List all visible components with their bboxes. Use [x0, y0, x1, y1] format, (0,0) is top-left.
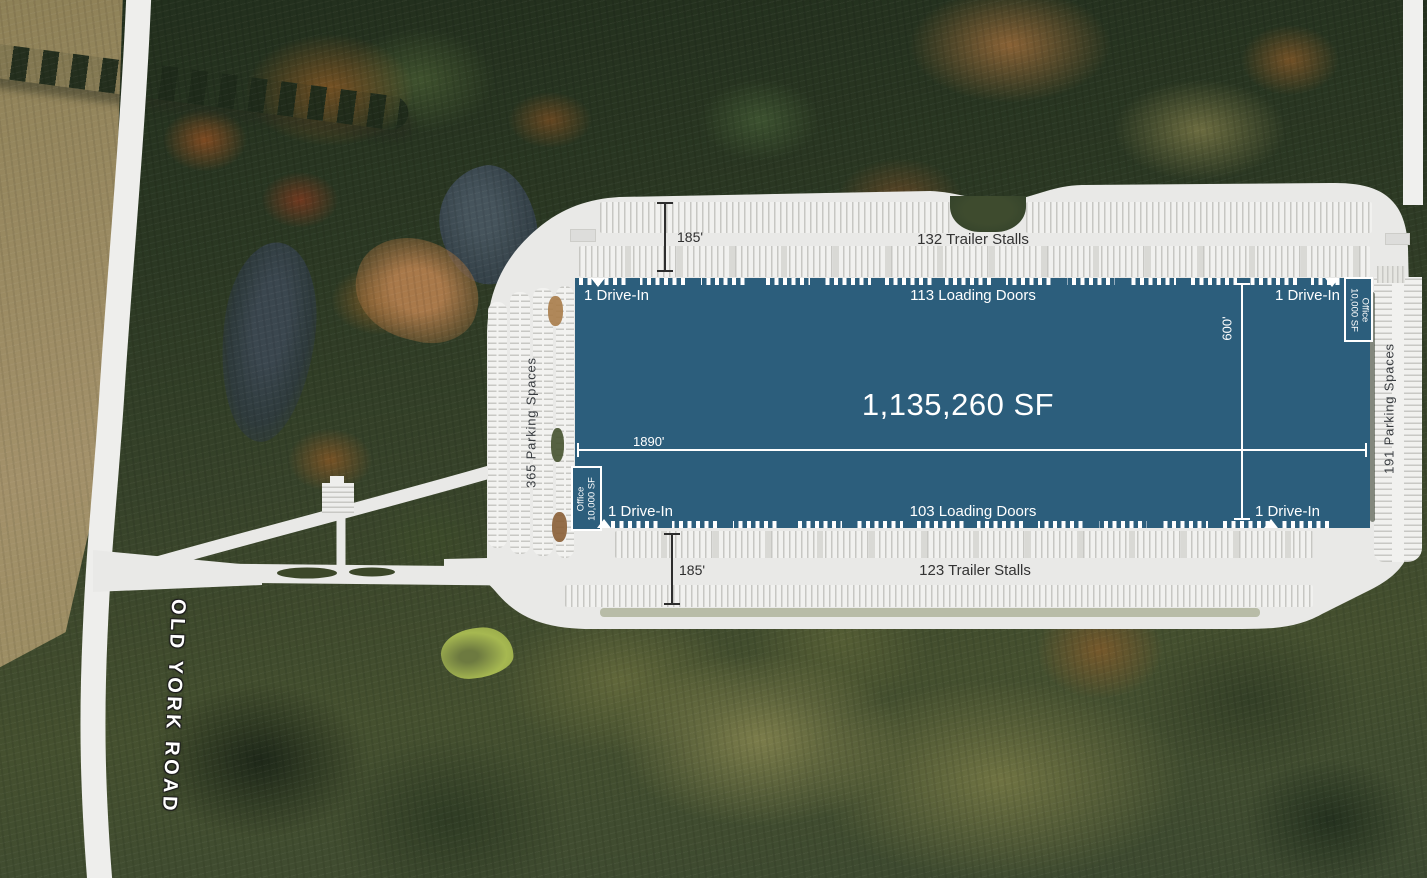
guard-parking-lot: [322, 483, 354, 513]
south-court-depth-line: [671, 534, 673, 605]
dimension-cap: [1365, 443, 1367, 457]
drive-in-arrow-sw: [597, 519, 611, 528]
trailer-stalls-north-row1-right: [1026, 202, 1372, 233]
trailer-stalls-north-row1-left: [600, 202, 950, 233]
dimension-cap: [577, 443, 579, 457]
old-york-road: [93, 0, 139, 878]
trailer-stalls-label-south: 123 Trailer Stalls: [919, 562, 1031, 579]
south-court-depth-label: 185': [679, 562, 705, 578]
dimension-cap: [657, 202, 673, 204]
building-area-label: 1,135,260 SF: [862, 387, 1054, 423]
utility-pad: [570, 229, 596, 242]
office-label-sw: Office 10,000 SF: [576, 468, 597, 530]
depth-dimension-line: [1241, 284, 1243, 520]
trailer-stalls-north-row2: [579, 246, 1370, 277]
drive-in-label-sw: 1 Drive-In: [608, 503, 673, 520]
drive-in-arrow-se: [1264, 519, 1278, 528]
landscape-island: [551, 428, 564, 462]
loading-doors-strip-north: [579, 278, 1345, 285]
trailer-stalls-label-north: 132 Trailer Stalls: [917, 231, 1029, 248]
loading-doors-label-north: 113 Loading Doors: [910, 287, 1036, 304]
landscape-island: [552, 512, 567, 542]
drive-in-label-ne: 1 Drive-In: [1275, 287, 1340, 304]
median-island: [277, 568, 337, 579]
parking-label-east: 191 Parking Spaces: [1382, 309, 1397, 509]
north-court-depth-label: 185': [677, 229, 703, 245]
drive-in-label-se: 1 Drive-In: [1255, 503, 1320, 520]
landscape-separator: [600, 608, 1260, 617]
trailer-stalls-south-row1: [615, 531, 1313, 558]
building-depth-label: 600': [1220, 306, 1235, 352]
dimension-cap: [1234, 283, 1250, 285]
dimension-cap: [664, 603, 680, 605]
length-dimension-line: [578, 449, 1367, 451]
west-parking-row: [488, 302, 507, 548]
median-island: [349, 568, 395, 577]
utility-pad: [1385, 233, 1410, 245]
dimension-cap: [1234, 518, 1250, 520]
dimension-cap: [657, 270, 673, 272]
loading-doors-strip-south: [611, 521, 1333, 528]
drive-in-arrow-nw: [591, 278, 605, 287]
dimension-cap: [664, 533, 680, 535]
site-plan-canvas: Office 10,000 SF Office 10,000 SF 1,135,…: [0, 0, 1427, 878]
landscape-island: [548, 296, 563, 326]
building-length-label: 1890': [633, 434, 664, 449]
office-box-ne: Office 10,000 SF: [1344, 277, 1373, 342]
office-label-ne: Office 10,000 SF: [1348, 279, 1369, 341]
loading-doors-label-south: 103 Loading Doors: [910, 503, 1037, 520]
guard-structure-east: [1377, 266, 1405, 283]
drive-in-label-nw: 1 Drive-In: [584, 287, 649, 304]
drive-in-arrow-ne: [1325, 278, 1339, 287]
north-court-depth-line: [664, 203, 666, 272]
parking-label-west: 365 Parking Spaces: [524, 323, 539, 523]
